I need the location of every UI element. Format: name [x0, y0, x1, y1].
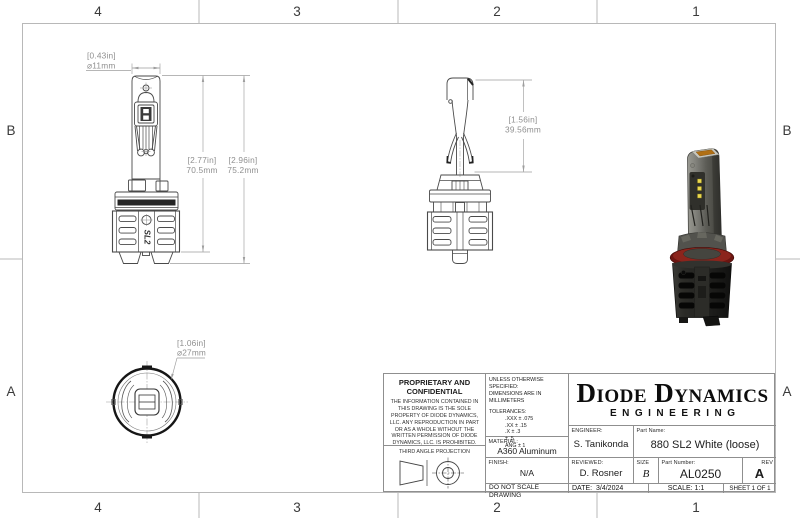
zone-top-3: 3: [293, 4, 301, 19]
part-name-label: Part Name:: [634, 426, 776, 434]
rev-value: A: [743, 466, 776, 482]
dim-stem-height-mm: 39.56mm: [505, 125, 541, 135]
zone-right-a: A: [782, 384, 791, 399]
engineer-cell: ENGINEER: S. Tanikonda: [569, 426, 634, 458]
proprietary-notice: PROPRIETARY AND CONFIDENTIAL THE INFORMA…: [384, 374, 486, 446]
title-block: PROPRIETARY AND CONFIDENTIAL THE INFORMA…: [383, 373, 775, 492]
third-angle-projection-symbol: [396, 456, 474, 490]
scale-cell: SCALE: 1:1: [649, 484, 724, 493]
dim-bulb-diameter-in: [0.43in]: [87, 51, 116, 61]
zone-top-2: 2: [493, 4, 501, 19]
date-value: 3/4/2024: [596, 485, 623, 492]
finish-cell: FINISH: N/A: [486, 458, 569, 484]
engineer-value: S. Tanikonda: [569, 434, 633, 456]
zone-bottom-1: 1: [692, 500, 700, 515]
company-name: Diode Dynamics: [576, 380, 768, 407]
dim-total-height-in: [2.96in]: [229, 155, 258, 165]
projection-label: THIRD ANGLE PROJECTION: [384, 446, 485, 455]
reviewed-cell: REVIEWED: D. Rosner: [569, 458, 634, 484]
part-number-cell: Part Number: AL0250: [659, 458, 743, 484]
zone-left-a: A: [6, 384, 15, 399]
dim-stem-height-in: [1.56in]: [509, 115, 538, 125]
finish-value: N/A: [486, 466, 568, 481]
sheet-cell: SHEET 1 OF 1: [724, 484, 776, 493]
front-view: SL2: [113, 76, 180, 264]
zone-bottom-3: 3: [293, 500, 301, 515]
dim-total-height-mm: 75.2mm: [227, 165, 258, 175]
engineer-label: ENGINEER:: [569, 426, 633, 434]
dim-base-diameter-in: [1.06in]: [177, 338, 206, 348]
rev-label: REV: [743, 458, 776, 466]
tolerance-line: .XXX ± .075: [489, 416, 566, 423]
size-label: SIZE: [634, 458, 658, 466]
bottom-view-dimensions: [1.06in] ⌀27mm: [171, 338, 206, 380]
company-logo-cell: Diode Dynamics ENGINEERING: [569, 374, 776, 426]
part-logo-text: SL2: [142, 230, 151, 245]
drawing-sheet: 4 3 2 1 4 3 2 1 B A B A: [0, 0, 800, 518]
size-value: B: [634, 466, 658, 482]
reviewed-label: REVIEWED:: [569, 458, 633, 466]
date-cell: DATE: 3/4/2024: [569, 484, 649, 493]
finish-label: FINISH:: [486, 458, 568, 466]
zone-top-4: 4: [94, 4, 102, 19]
date-label: DATE:: [572, 485, 592, 492]
tolerance-line: .X ± .3: [489, 429, 566, 436]
zone-right-b: B: [782, 123, 791, 138]
projection-cell: THIRD ANGLE PROJECTION: [384, 446, 486, 493]
material-value: A360 Aluminum: [486, 445, 568, 458]
side-view-dimensions: [1.56in] 39.56mm: [475, 80, 542, 172]
part-name-value: 880 SL2 White (loose): [634, 434, 776, 456]
part-number-label: Part Number:: [659, 458, 742, 466]
material-cell: MATERIAL: A360 Aluminum: [486, 437, 569, 458]
specs-cell: UNLESS OTHERWISE SPECIFIED: DIMENSIONS A…: [486, 374, 569, 437]
front-view-dimensions: [0.43in] ⌀11mm [2.77in] 70.5mm [2.96in] …: [86, 51, 259, 264]
render-view: [670, 149, 734, 327]
bottom-view: [106, 361, 188, 443]
side-view: [428, 78, 493, 264]
units-note: DIMENSIONS ARE IN MILLIMETERS: [489, 391, 566, 405]
dim-bulb-diameter-mm: ⌀11mm: [87, 61, 115, 71]
part-number-value: AL0250: [659, 466, 742, 482]
size-cell: SIZE B: [634, 458, 659, 484]
dim-base-diameter-mm: ⌀27mm: [177, 348, 206, 358]
company-division: ENGINEERING: [604, 408, 740, 419]
dim-body-height-in: [2.77in]: [188, 155, 217, 165]
tolerance-line: .XX ± .15: [489, 423, 566, 430]
zone-left-b: B: [6, 123, 15, 138]
reviewed-value: D. Rosner: [569, 466, 633, 482]
proprietary-body: THE INFORMATION CONTAINED IN THIS DRAWIN…: [387, 399, 483, 447]
proprietary-heading: PROPRIETARY AND CONFIDENTIAL: [399, 374, 471, 396]
do-not-scale-note: DO NOT SCALE DRAWING: [486, 484, 569, 493]
part-name-cell: Part Name: 880 SL2 White (loose): [634, 426, 776, 458]
zone-top-1: 1: [692, 4, 700, 19]
rev-cell: REV A: [743, 458, 776, 484]
dim-body-height-mm: 70.5mm: [186, 165, 217, 175]
zone-bottom-4: 4: [94, 500, 102, 515]
unless-otherwise: UNLESS OTHERWISE SPECIFIED:: [489, 377, 566, 391]
material-label: MATERIAL:: [486, 437, 568, 445]
tolerances-label: TOLERANCES:: [489, 409, 566, 416]
zone-bottom-2: 2: [493, 500, 501, 515]
